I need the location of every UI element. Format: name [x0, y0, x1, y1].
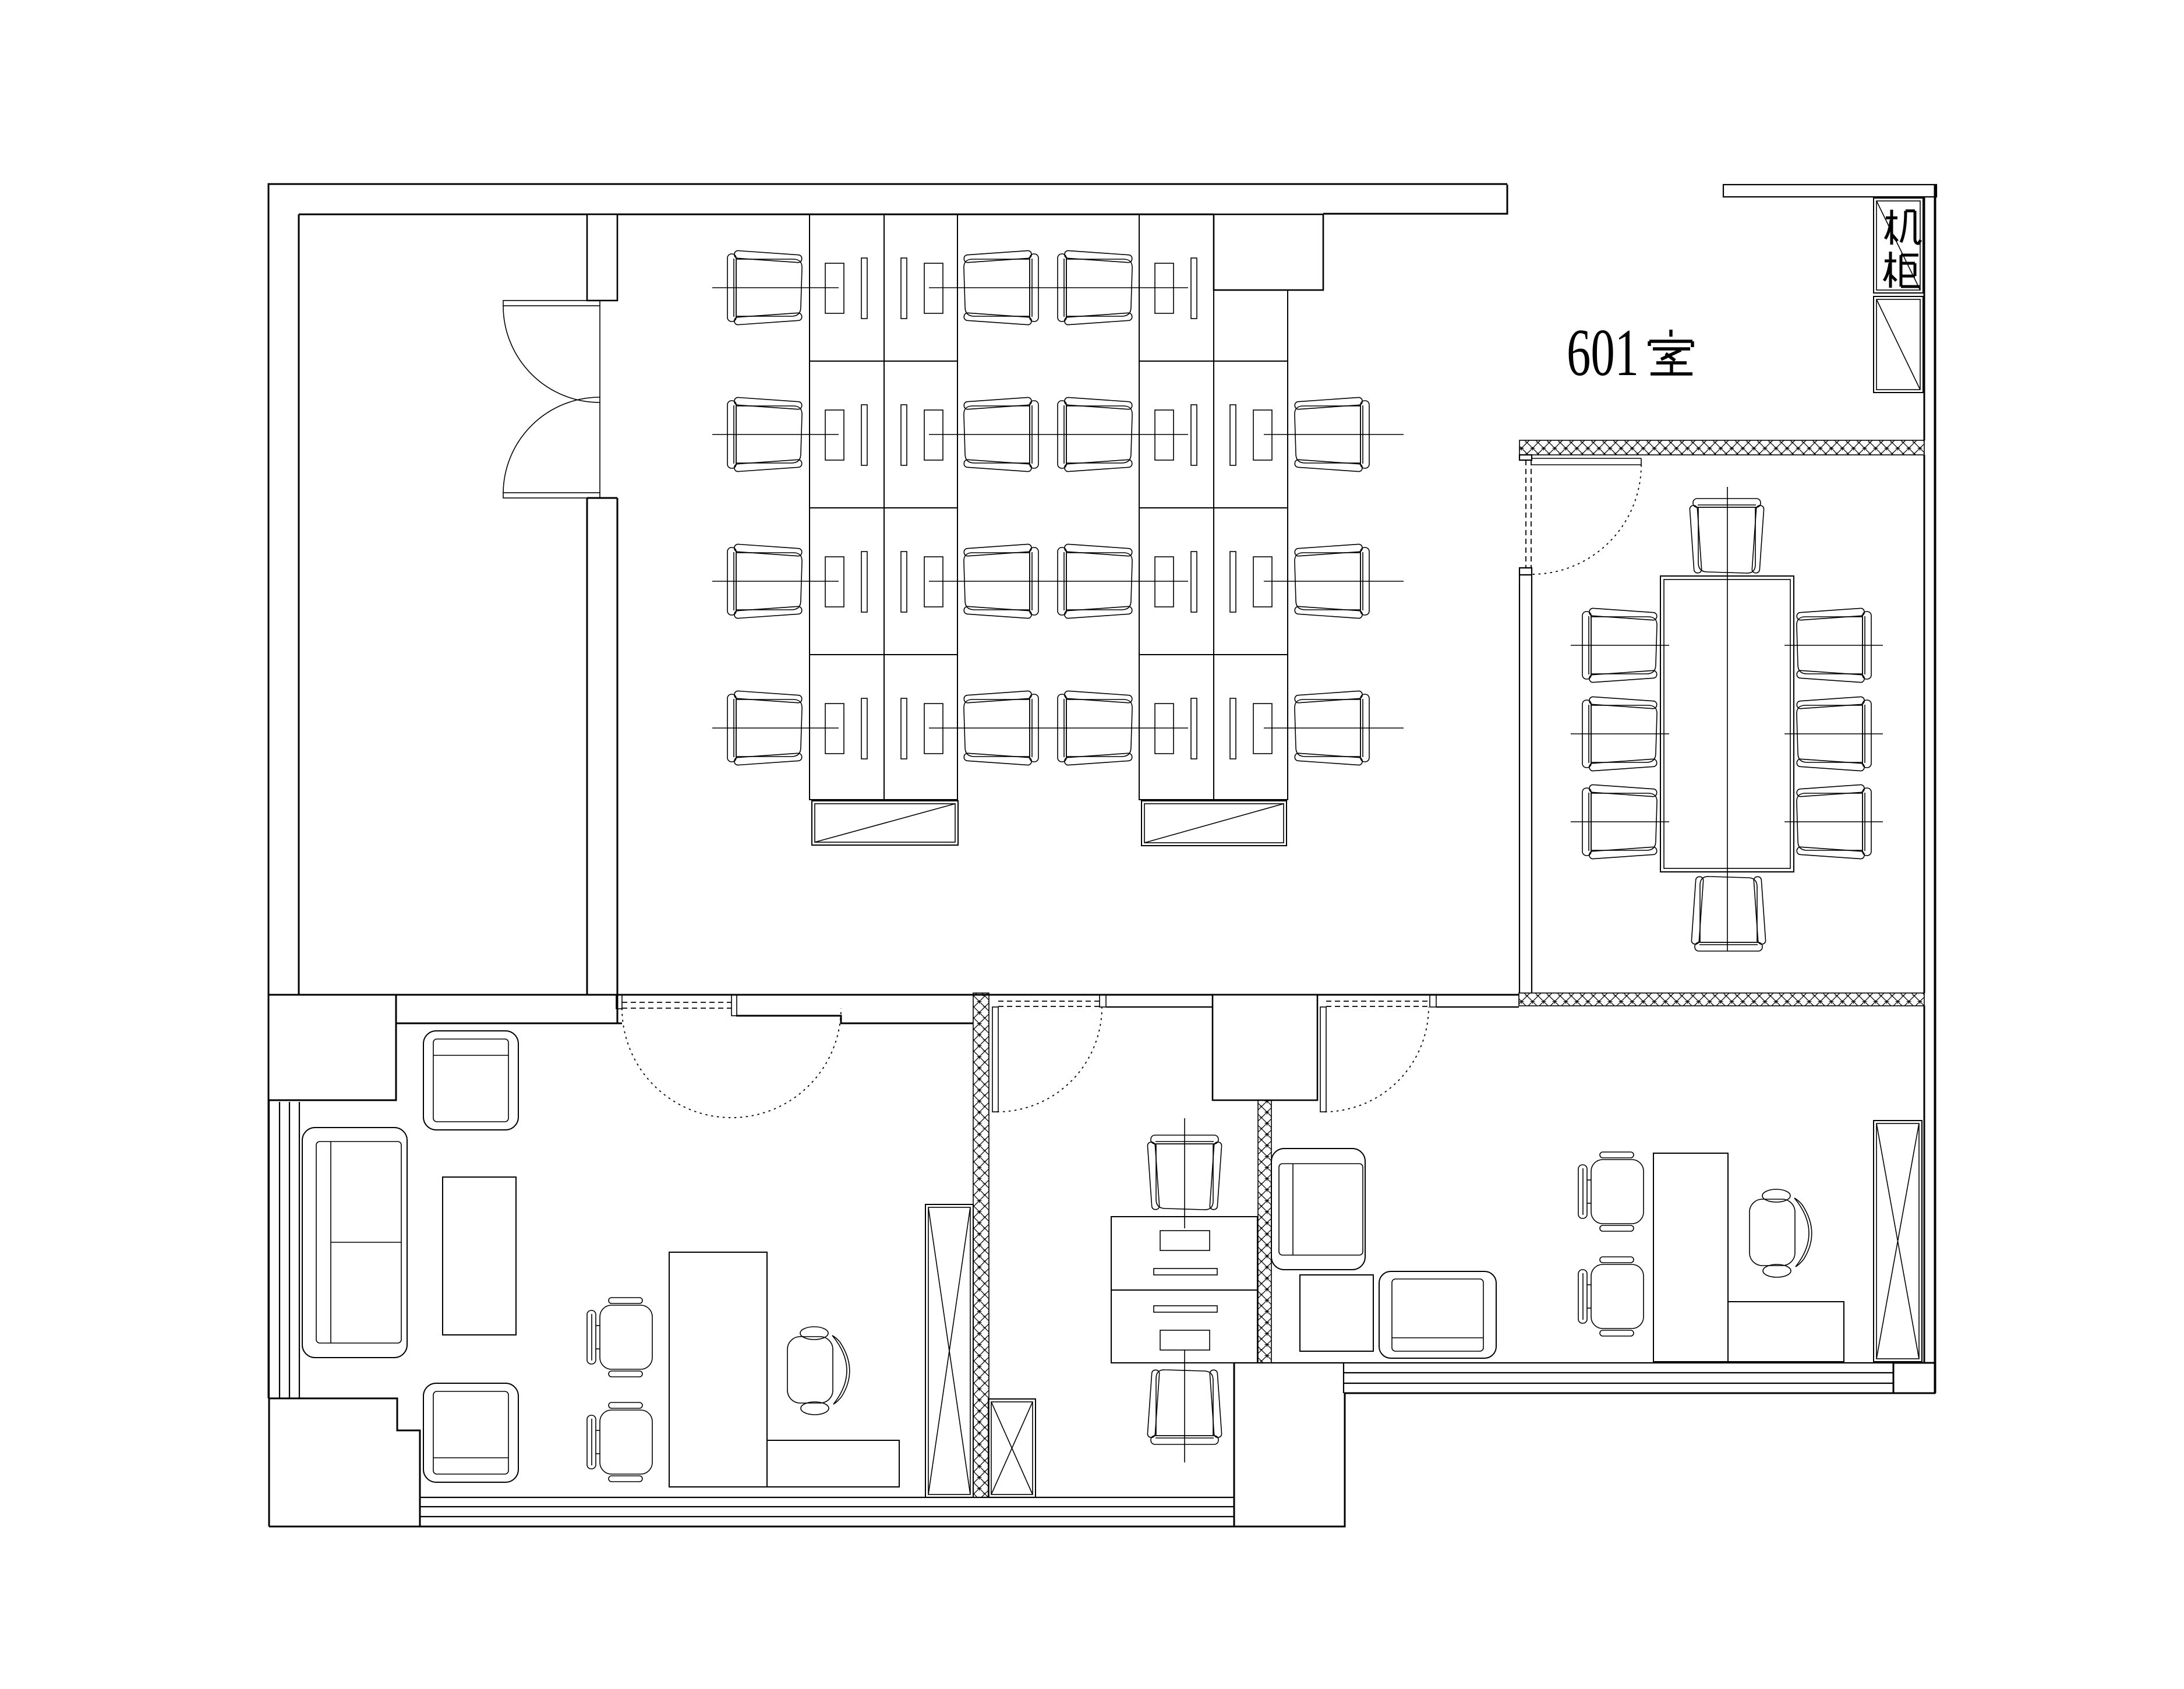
svg-text:601: 601 [1567, 316, 1639, 390]
